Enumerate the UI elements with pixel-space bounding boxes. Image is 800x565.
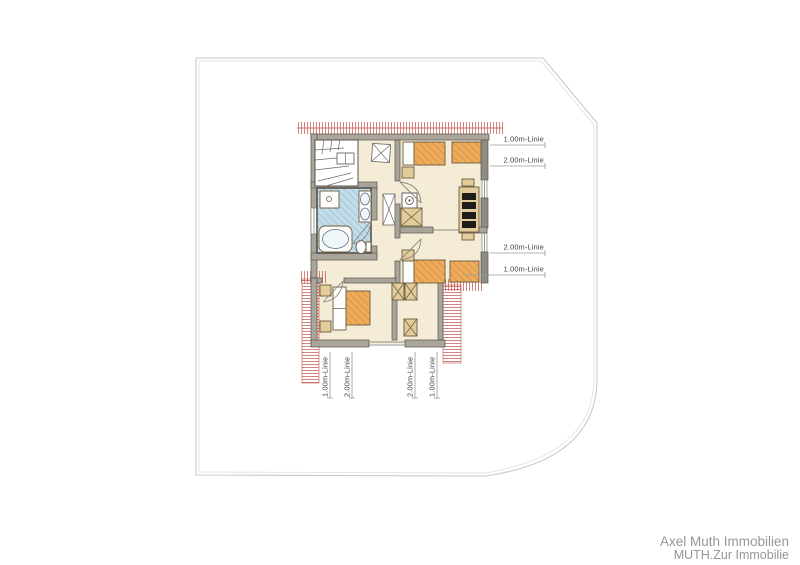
nightstand3-icon (320, 285, 331, 296)
wall-centre-a (395, 140, 400, 181)
shaft-icon-2 (392, 283, 404, 300)
lower-floor-area (313, 278, 443, 344)
dim-label-r1: 1.00m-Linie (504, 135, 544, 144)
dim-label-r4: 1.00m-Linie (504, 265, 544, 274)
footer-tagline: MUTH.Zur Immobilie (674, 548, 789, 562)
wall-centre-b (395, 204, 400, 238)
bathtub-basin (323, 230, 349, 249)
bed2-icon (452, 142, 481, 163)
chair-icon-bottom (462, 233, 474, 240)
wall-lower-top-b (344, 278, 396, 283)
wall-lower-left (311, 278, 317, 346)
wall-corridor-right (438, 283, 443, 340)
dim-label-b3: 2.00m-Linie (406, 357, 415, 397)
washbasin-icon-1 (361, 193, 370, 205)
shower-icon (320, 191, 339, 208)
wall-mid-right-a (397, 227, 433, 233)
dresser-drawer1 (462, 193, 476, 200)
roof-hatch-right (443, 285, 461, 363)
dim-label-r3: 2.00m-Linie (504, 243, 544, 252)
wall-bottom-a (311, 340, 369, 347)
floor-plan-page: 1.00m-Linie 2.00m-Linie 2.00m-Linie 1.00… (0, 0, 800, 565)
chair-icon-top (462, 179, 474, 186)
dim-label-b4: 1.00m-Linie (428, 357, 437, 397)
bed1-pillow (403, 142, 414, 165)
dresser-drawer4 (462, 221, 476, 228)
shaft-icon-3 (405, 283, 417, 300)
skylight-icon (371, 143, 390, 162)
dim-label-b1: 1.00m-Linie (321, 357, 330, 397)
bathroom (317, 188, 371, 254)
shaft-icon-4 (404, 319, 417, 336)
dresser-drawer3 (462, 212, 476, 219)
wall-bottom-b (405, 340, 445, 347)
washing-machine-dot (408, 199, 410, 201)
wall-right-seg1 (481, 140, 488, 180)
footer-company-name: Axel Muth Immobilien (660, 534, 789, 549)
wall-bath-bottom (311, 253, 377, 260)
wall-right-seg2 (481, 198, 488, 228)
toilet-tank (366, 242, 371, 252)
wall-top (311, 134, 489, 140)
dimension-labels-bottom: 1.00m-Linie 2.00m-Linie 2.00m-Linie 1.00… (321, 357, 437, 397)
footer: Axel Muth Immobilien MUTH.Zur Immobilie (660, 534, 789, 562)
bed3-pillow (403, 261, 414, 283)
wall-bath-right-a (371, 188, 377, 220)
floor-plan-drawing: 1.00m-Linie 2.00m-Linie 2.00m-Linie 1.00… (0, 0, 800, 565)
nightstand1-icon (402, 167, 414, 178)
bed4-icon (450, 261, 479, 282)
bed3-icon (414, 260, 445, 283)
bed1-icon (414, 142, 445, 165)
bed5-icon (346, 291, 370, 325)
dim-label-r2: 2.00m-Linie (504, 156, 544, 165)
nightstand4-icon (320, 321, 331, 332)
dim-label-b2: 2.00m-Linie (343, 357, 352, 397)
shaft-icon-1 (401, 208, 422, 226)
washbasin-icon-2 (361, 208, 370, 220)
dresser-drawer2 (462, 202, 476, 209)
wall-right-seg3 (481, 252, 488, 283)
staircase (315, 140, 358, 186)
